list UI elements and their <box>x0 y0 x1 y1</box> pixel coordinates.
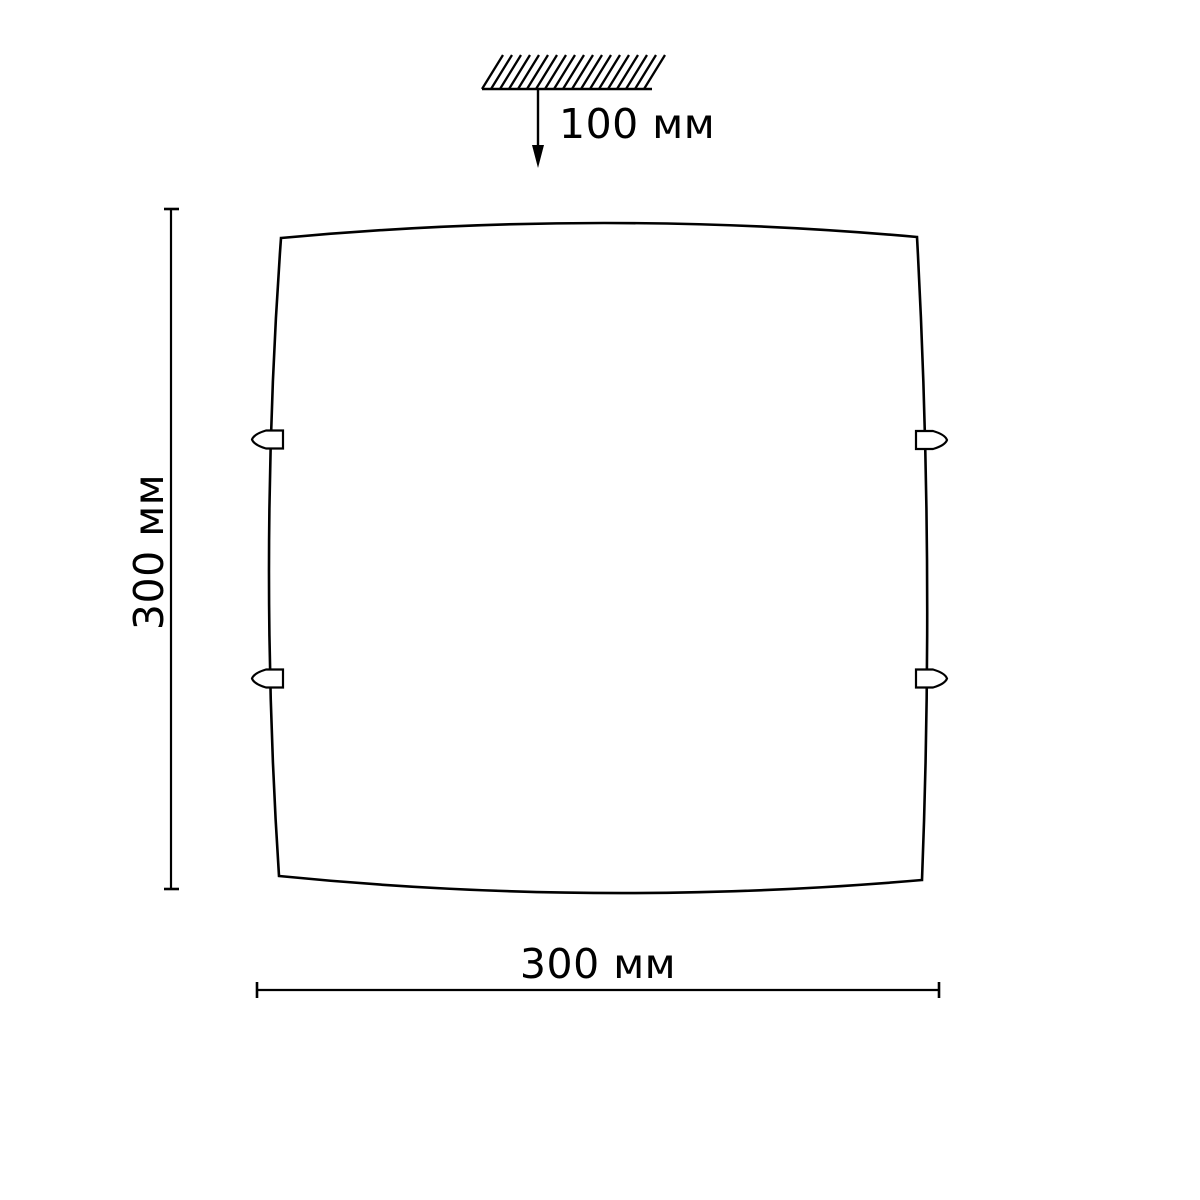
mount-clip-left-bottom-icon <box>252 670 283 688</box>
height-label: 300 мм <box>125 474 173 630</box>
drop-height-dimension: 100 мм <box>532 90 715 168</box>
width-label: 300 мм <box>520 940 676 988</box>
mount-clip-right-top-icon <box>916 431 947 449</box>
ceiling-hatch-icon <box>482 55 665 89</box>
plafond-outline <box>269 223 927 893</box>
mount-clip-right-bottom-icon <box>916 670 947 688</box>
arrow-down-icon <box>532 145 544 168</box>
dimension-diagram: 100 мм 300 мм 300 мм <box>0 0 1200 1200</box>
ceiling-mount-symbol <box>482 55 665 89</box>
height-dimension: 300 мм <box>125 209 179 889</box>
width-dimension: 300 мм <box>257 940 939 998</box>
diagram-canvas: 100 мм 300 мм 300 мм <box>0 0 1200 1200</box>
drop-height-label: 100 мм <box>559 100 715 148</box>
mount-clip-left-top-icon <box>252 431 283 449</box>
